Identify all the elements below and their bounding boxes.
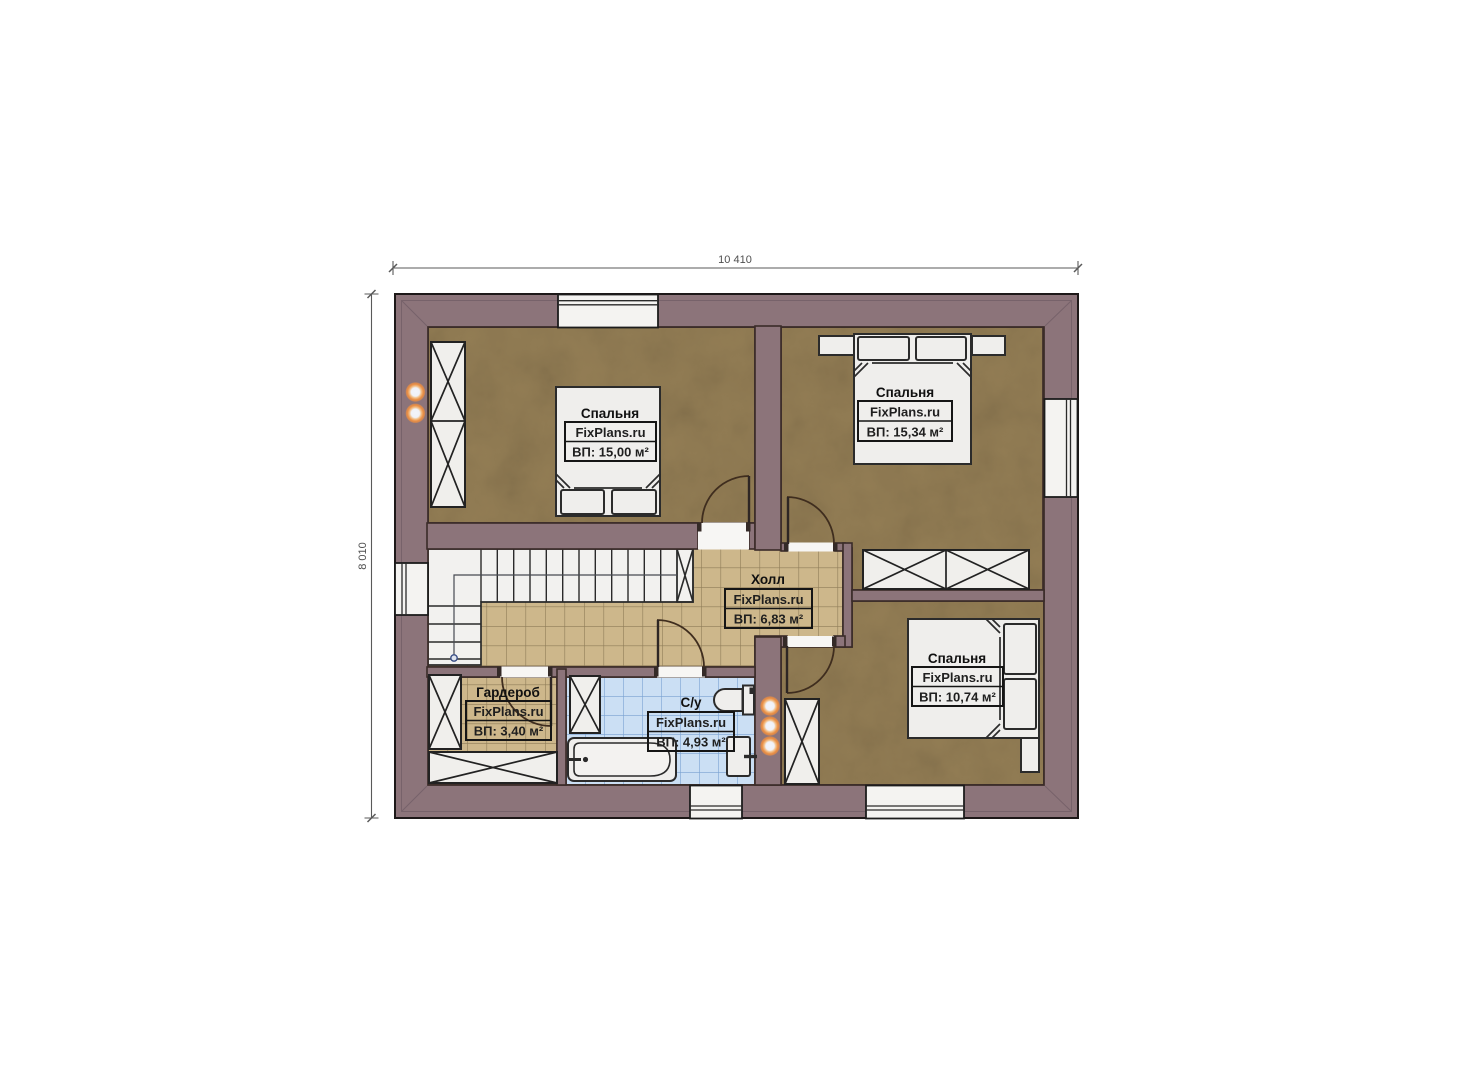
svg-text:FixPlans.ru: FixPlans.ru bbox=[733, 592, 803, 607]
svg-text:Гардероб: Гардероб bbox=[476, 685, 540, 700]
svg-text:ВП: 15,34 м²: ВП: 15,34 м² bbox=[867, 425, 944, 440]
svg-text:10 410: 10 410 bbox=[718, 254, 752, 266]
svg-text:ВП: 15,00 м²: ВП: 15,00 м² bbox=[572, 445, 649, 460]
svg-text:Спальня: Спальня bbox=[928, 651, 986, 666]
svg-text:С/у: С/у bbox=[680, 695, 702, 710]
svg-text:FixPlans.ru: FixPlans.ru bbox=[656, 715, 726, 730]
svg-text:FixPlans.ru: FixPlans.ru bbox=[870, 405, 940, 420]
svg-text:Холл: Холл bbox=[751, 572, 785, 587]
svg-text:Спальня: Спальня bbox=[876, 385, 934, 400]
svg-text:ВП: 3,40 м²: ВП: 3,40 м² bbox=[474, 724, 544, 739]
svg-text:Спальня: Спальня bbox=[581, 406, 639, 421]
svg-text:ВП: 4,93 м²: ВП: 4,93 м² bbox=[656, 735, 726, 750]
svg-text:FixPlans.ru: FixPlans.ru bbox=[922, 670, 992, 685]
svg-text:FixPlans.ru: FixPlans.ru bbox=[575, 425, 645, 440]
svg-text:ВП: 10,74 м²: ВП: 10,74 м² bbox=[919, 690, 996, 705]
svg-text:8 010: 8 010 bbox=[357, 542, 369, 570]
svg-text:ВП: 6,83 м²: ВП: 6,83 м² bbox=[734, 612, 804, 627]
svg-text:FixPlans.ru: FixPlans.ru bbox=[473, 704, 543, 719]
